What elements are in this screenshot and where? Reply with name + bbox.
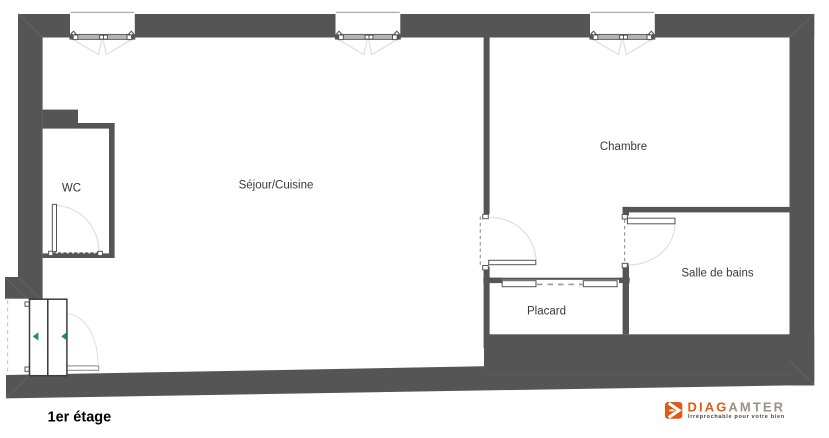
svg-text:DIAGAMTER: DIAGAMTER	[688, 400, 786, 415]
svg-text:Placard: Placard	[527, 306, 566, 318]
svg-text:Irréprochable pour votre bien: Irréprochable pour votre bien	[688, 414, 785, 420]
svg-text:1er étage: 1er étage	[48, 410, 112, 426]
svg-text:Chambre: Chambre	[600, 141, 647, 153]
svg-text:Séjour/Cuisine: Séjour/Cuisine	[239, 179, 314, 191]
svg-text:WC: WC	[62, 183, 81, 195]
svg-text:Salle de bains: Salle de bains	[681, 268, 753, 280]
